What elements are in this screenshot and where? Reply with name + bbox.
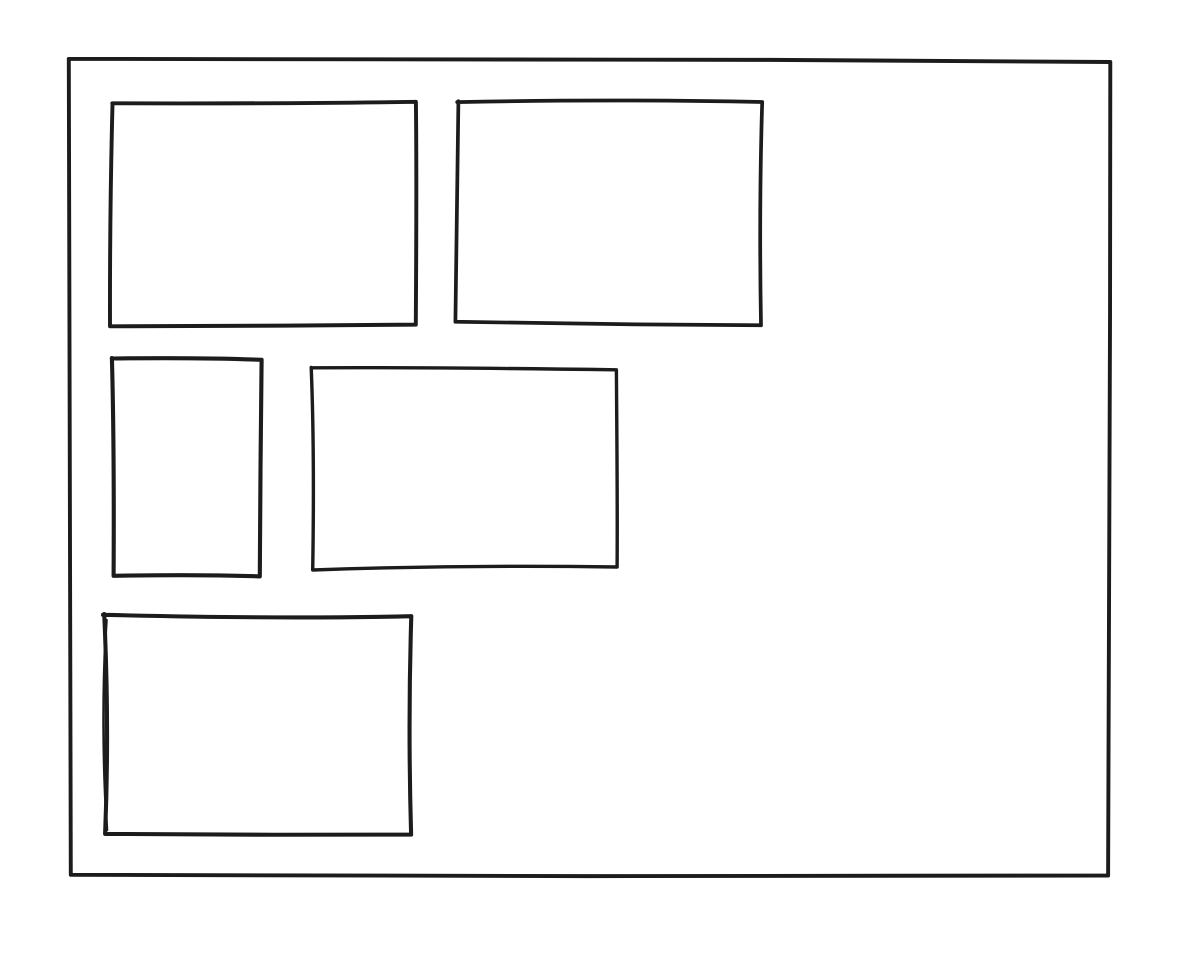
sketch-canvas xyxy=(0,0,1192,956)
box-top-left xyxy=(110,102,416,327)
box-middle-wide xyxy=(311,367,617,570)
outer-frame xyxy=(68,59,1110,876)
box-top-right xyxy=(455,101,762,326)
box-bottom xyxy=(103,614,411,835)
sketch-page xyxy=(0,0,1192,956)
box-middle-small xyxy=(112,358,262,576)
